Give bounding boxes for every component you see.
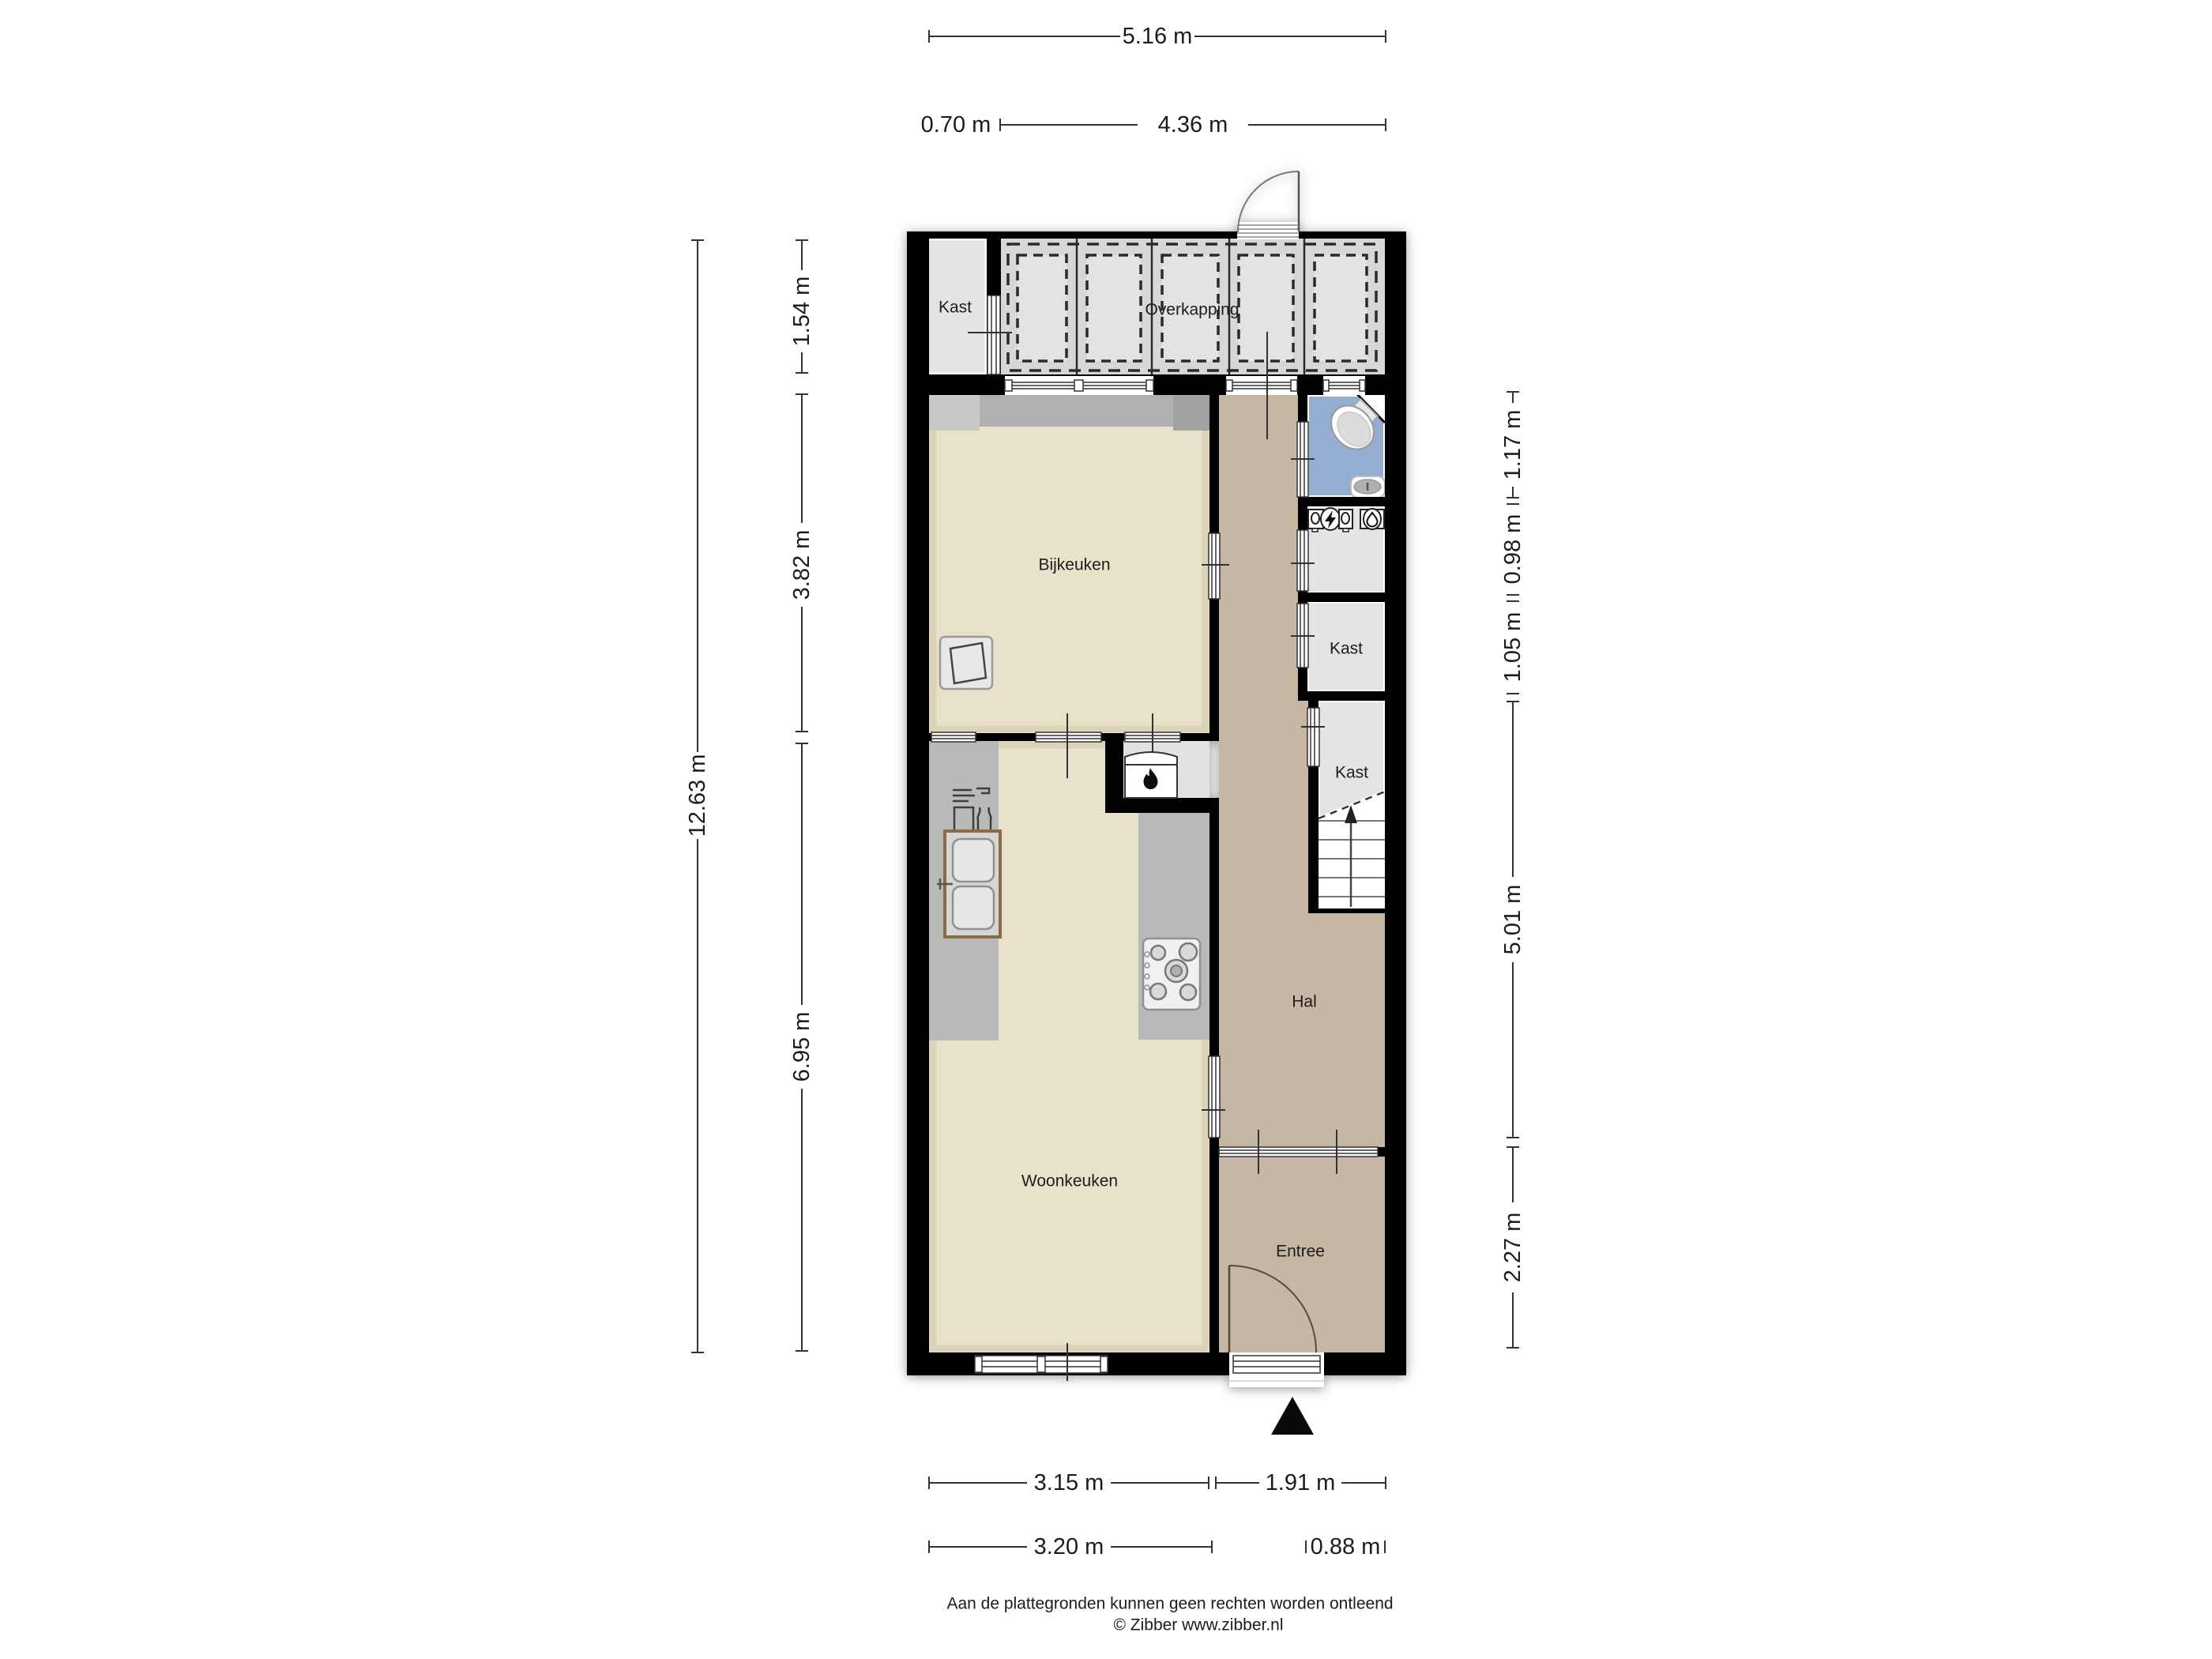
svg-text:1.91 m: 1.91 m — [1266, 1470, 1336, 1495]
svg-text:3.82 m: 3.82 m — [789, 530, 814, 600]
svg-text:0.98 m: 0.98 m — [1500, 514, 1525, 585]
svg-text:0.88 m: 0.88 m — [1311, 1534, 1381, 1559]
svg-text:Woonkeuken: Woonkeuken — [1021, 1172, 1118, 1191]
svg-text:Bijkeuken: Bijkeuken — [1038, 556, 1110, 574]
svg-text:Kast: Kast — [1335, 764, 1368, 782]
svg-text:5.01 m: 5.01 m — [1500, 885, 1525, 955]
svg-text:1.17 m: 1.17 m — [1500, 410, 1525, 480]
svg-text:0.70 m: 0.70 m — [921, 112, 991, 137]
svg-text:12.63 m: 12.63 m — [685, 754, 710, 837]
svg-text:1.05 m: 1.05 m — [1500, 612, 1525, 683]
svg-text:Overkapping: Overkapping — [1145, 301, 1239, 319]
svg-text:Entree: Entree — [1276, 1243, 1325, 1261]
svg-text:Aan de plattegronden kunnen ge: Aan de plattegronden kunnen geen rechten… — [946, 1595, 1393, 1613]
svg-text:© Zibber www.zibber.nl: © Zibber www.zibber.nl — [1113, 1616, 1283, 1635]
svg-text:6.95 m: 6.95 m — [789, 1012, 814, 1082]
svg-text:4.36 m: 4.36 m — [1158, 112, 1228, 137]
svg-text:Hal: Hal — [1292, 993, 1317, 1011]
svg-text:1.54 m: 1.54 m — [789, 276, 814, 347]
svg-text:Kast: Kast — [939, 299, 972, 317]
svg-text:3.20 m: 3.20 m — [1034, 1534, 1104, 1559]
svg-text:2.27 m: 2.27 m — [1500, 1213, 1525, 1283]
svg-text:3.15 m: 3.15 m — [1034, 1470, 1104, 1495]
svg-text:Kast: Kast — [1330, 640, 1363, 658]
svg-text:5.16 m: 5.16 m — [1123, 24, 1193, 49]
